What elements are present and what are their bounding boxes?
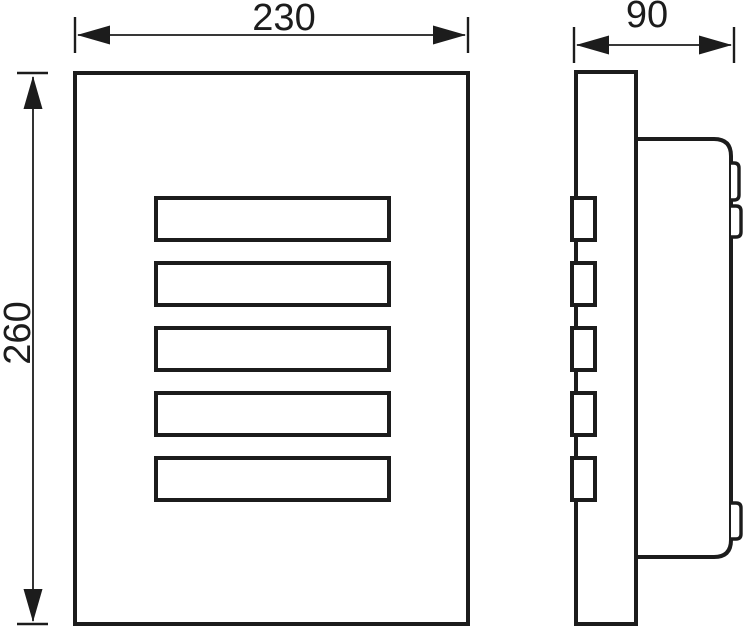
louver-slat xyxy=(156,198,389,240)
mounting-tab-top xyxy=(731,163,739,200)
arrowhead-right-icon xyxy=(433,26,466,45)
technical-drawing: 230 260 90 xyxy=(0,0,743,630)
drawing-canvas: 230 260 90 xyxy=(0,0,743,630)
arrowhead-up-icon xyxy=(24,76,43,109)
dimension-depth: 90 xyxy=(574,0,734,63)
dimension-height: 260 xyxy=(0,73,48,624)
width-dimension-label: 230 xyxy=(252,0,315,39)
slat-notch xyxy=(572,263,595,305)
louver-slat xyxy=(156,328,389,370)
side-view-body xyxy=(638,139,731,557)
mounting-tab-bottom xyxy=(731,503,741,539)
slat-notch xyxy=(572,198,595,240)
slat-notch xyxy=(572,328,595,370)
arrowhead-right-icon xyxy=(699,36,732,55)
louver-slat xyxy=(156,458,389,500)
louver-slat xyxy=(156,263,389,305)
arrowhead-down-icon xyxy=(24,589,43,622)
depth-dimension-label: 90 xyxy=(626,0,668,36)
arrowhead-left-icon xyxy=(576,36,609,55)
mounting-tab-middle xyxy=(731,206,741,237)
slat-notch xyxy=(572,393,595,435)
front-view xyxy=(75,73,468,624)
side-view xyxy=(572,72,741,624)
louver-slat xyxy=(156,393,389,435)
dimension-width: 230 xyxy=(75,0,468,53)
height-dimension-label: 260 xyxy=(0,301,39,364)
slat-notch xyxy=(572,458,595,500)
arrowhead-left-icon xyxy=(77,26,110,45)
